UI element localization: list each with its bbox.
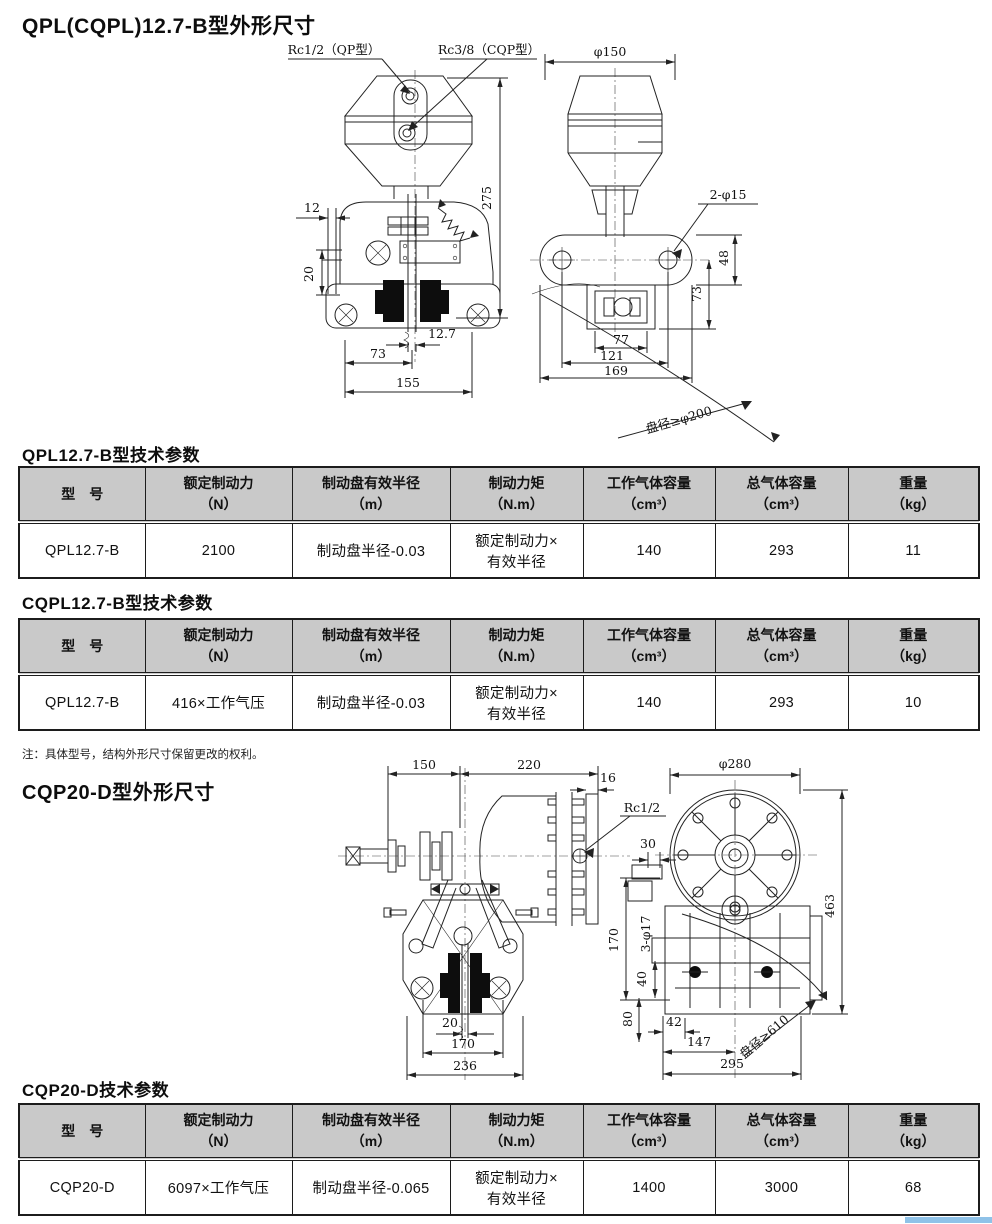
dim-170: 170: [451, 1036, 475, 1051]
qpl-params-table: 型 号 额定制动力 （N） 制动盘有效半径 （m） 制动力矩 （N.m） 工作气…: [18, 466, 980, 579]
table-row: QPL12.7-B 2100 制动盘半径-0.03 额定制动力× 有效半径 14…: [19, 522, 979, 578]
col-header-working-volume: 工作气体容量 （cm³）: [583, 1104, 715, 1159]
brake-pad-left: [440, 953, 460, 1013]
cell-model: CQP20-D: [19, 1159, 145, 1215]
col-header-rated-force: 额定制动力 （N）: [145, 467, 292, 522]
cell-model: QPL12.7-B: [19, 522, 145, 578]
table-header-row: 型 号 额定制动力 （N） 制动盘有效半径 （m） 制动力矩 （N.m） 工作气…: [19, 619, 979, 674]
dim-121: 121: [600, 348, 624, 363]
label-rc38-cqp: Rc3/8（CQP型）: [438, 42, 540, 57]
disc-diameter-note: 盘径≥φ200: [644, 403, 714, 436]
cell-model: QPL12.7-B: [19, 674, 145, 730]
col-header-rated-force: 额定制动力 （N）: [145, 1104, 292, 1159]
col-header-working-volume: 工作气体容量 （cm³）: [583, 467, 715, 522]
cqpl-params-table: 型 号 额定制动力 （N） 制动盘有效半径 （m） 制动力矩 （N.m） 工作气…: [18, 618, 980, 731]
col-header-model: 型 号: [19, 467, 145, 522]
cell-weight: 10: [848, 674, 979, 730]
brake-pad-right: [420, 280, 449, 322]
dim-170-front: 170: [606, 928, 621, 952]
cell-working-volume: 1400: [583, 1159, 715, 1215]
cell-total-volume: 3000: [715, 1159, 848, 1215]
cell-torque: 额定制动力× 有效半径: [450, 674, 583, 730]
flange-bolts: [548, 799, 584, 915]
title-cqp20-params: CQP20-D技术参数: [22, 1076, 169, 1101]
col-header-radius: 制动盘有效半径 （m）: [292, 619, 450, 674]
cell-weight: 11: [848, 522, 979, 578]
dim-236: 236: [453, 1058, 477, 1073]
cqp20-params-table: 型 号 额定制动力 （N） 制动盘有效半径 （m） 制动力矩 （N.m） 工作气…: [18, 1103, 980, 1216]
cell-torque: 额定制动力× 有效半径: [450, 1159, 583, 1215]
dim-3-phi17: 3-φ17: [638, 916, 653, 953]
col-header-model: 型 号: [19, 1104, 145, 1159]
col-header-weight: 重量 （kg）: [848, 619, 979, 674]
col-header-radius: 制动盘有效半径 （m）: [292, 467, 450, 522]
dim-48: 48: [716, 250, 731, 266]
col-header-weight: 重量 （kg）: [848, 1104, 979, 1159]
col-header-torque: 制动力矩 （N.m）: [450, 619, 583, 674]
cell-radius: 制动盘半径-0.065: [292, 1159, 450, 1215]
dim-2-phi15: 2-φ15: [710, 187, 747, 202]
table-row: CQP20-D 6097×工作气压 制动盘半径-0.065 额定制动力× 有效半…: [19, 1159, 979, 1215]
dim-20: 20: [442, 1015, 458, 1030]
brake-pad-right: [470, 953, 490, 1013]
cell-total-volume: 293: [715, 522, 848, 578]
col-header-working-volume: 工作气体容量 （cm³）: [583, 619, 715, 674]
catalog-page: QPL(CQPL)12.7-B型外形尺寸 Rc1/2（QP型） Rc3/8（CQ…: [0, 0, 992, 1224]
col-header-torque: 制动力矩 （N.m）: [450, 1104, 583, 1159]
cell-torque: 额定制动力× 有效半径: [450, 522, 583, 578]
table-header-row: 型 号 额定制动力 （N） 制动盘有效半径 （m） 制动力矩 （N.m） 工作气…: [19, 467, 979, 522]
cell-working-volume: 140: [583, 522, 715, 578]
label-rc12-qp: Rc1/2（QP型）: [288, 42, 381, 57]
cell-total-volume: 293: [715, 674, 848, 730]
cell-working-volume: 140: [583, 674, 715, 730]
title-qpl-outline: QPL(CQPL)12.7-B型外形尺寸: [22, 10, 316, 40]
dim-73-side: 73: [689, 286, 704, 302]
cell-radius: 制动盘半径-0.03: [292, 674, 450, 730]
qpl-side-view: φ150 2-φ15: [530, 44, 780, 442]
dim-169: 169: [604, 363, 628, 378]
dim-155: 155: [396, 375, 420, 390]
dim-147: 147: [687, 1034, 711, 1049]
brake-pad-left: [375, 280, 404, 322]
table-row: QPL12.7-B 416×工作气压 制动盘半径-0.03 额定制动力× 有效半…: [19, 674, 979, 730]
dim-phi150: φ150: [594, 44, 627, 59]
col-header-torque: 制动力矩 （N.m）: [450, 467, 583, 522]
dim-phi280: φ280: [719, 756, 752, 771]
dim-80: 80: [620, 1011, 635, 1027]
col-header-total-volume: 总气体容量 （cm³）: [715, 1104, 848, 1159]
dim-463: 463: [822, 894, 837, 918]
title-cqp20-outline: CQP20-D型外形尺寸: [22, 776, 215, 805]
dim-12: 12: [304, 200, 320, 215]
dim-30: 30: [640, 836, 656, 851]
title-qpl-params: QPL12.7-B型技术参数: [22, 441, 200, 466]
cqp20-outline-drawing: 150 220 16 Rc1/2: [330, 748, 990, 1083]
qpl-front-view: Rc1/2（QP型） Rc3/8（CQP型）: [288, 42, 540, 398]
dim-40: 40: [634, 971, 649, 987]
dim-20: 20: [301, 266, 316, 282]
cell-rated-force: 2100: [145, 522, 292, 578]
cqp20-side-view: 150 220 16 Rc1/2: [338, 757, 666, 1080]
col-header-total-volume: 总气体容量 （cm³）: [715, 467, 848, 522]
table-header-row: 型 号 额定制动力 （N） 制动盘有效半径 （m） 制动力矩 （N.m） 工作气…: [19, 1104, 979, 1159]
cell-rated-force: 6097×工作气压: [145, 1159, 292, 1215]
label-rc12: Rc1/2: [624, 800, 661, 815]
spring-symbol: [438, 208, 470, 241]
dim-73-front: 73: [370, 346, 386, 361]
cell-rated-force: 416×工作气压: [145, 674, 292, 730]
cell-weight: 68: [848, 1159, 979, 1215]
dim-16: 16: [600, 770, 616, 785]
footnote: 注：具体型号，结构外形尺寸保留更改的权利。: [22, 746, 264, 762]
dim-295: 295: [720, 1056, 744, 1071]
col-header-radius: 制动盘有效半径 （m）: [292, 1104, 450, 1159]
col-header-model: 型 号: [19, 619, 145, 674]
dim-220: 220: [517, 757, 541, 772]
dim-150: 150: [412, 757, 436, 772]
page-accent-bar: [905, 1217, 992, 1223]
disc-arc: [682, 914, 827, 1000]
col-header-rated-force: 额定制动力 （N）: [145, 619, 292, 674]
dim-275: 275: [479, 186, 494, 210]
col-header-weight: 重量 （kg）: [848, 467, 979, 522]
dim-42: 42: [666, 1014, 682, 1029]
col-header-total-volume: 总气体容量 （cm³）: [715, 619, 848, 674]
disc-diameter-note: 盘径≥610: [737, 1012, 792, 1062]
qpl-outline-drawing: Rc1/2（QP型） Rc3/8（CQP型）: [282, 32, 992, 446]
title-cqpl-params: CQPL12.7-B型技术参数: [22, 589, 213, 614]
dim-12-7: 12.7: [428, 326, 456, 341]
cell-radius: 制动盘半径-0.03: [292, 522, 450, 578]
dim-77: 77: [613, 332, 629, 347]
